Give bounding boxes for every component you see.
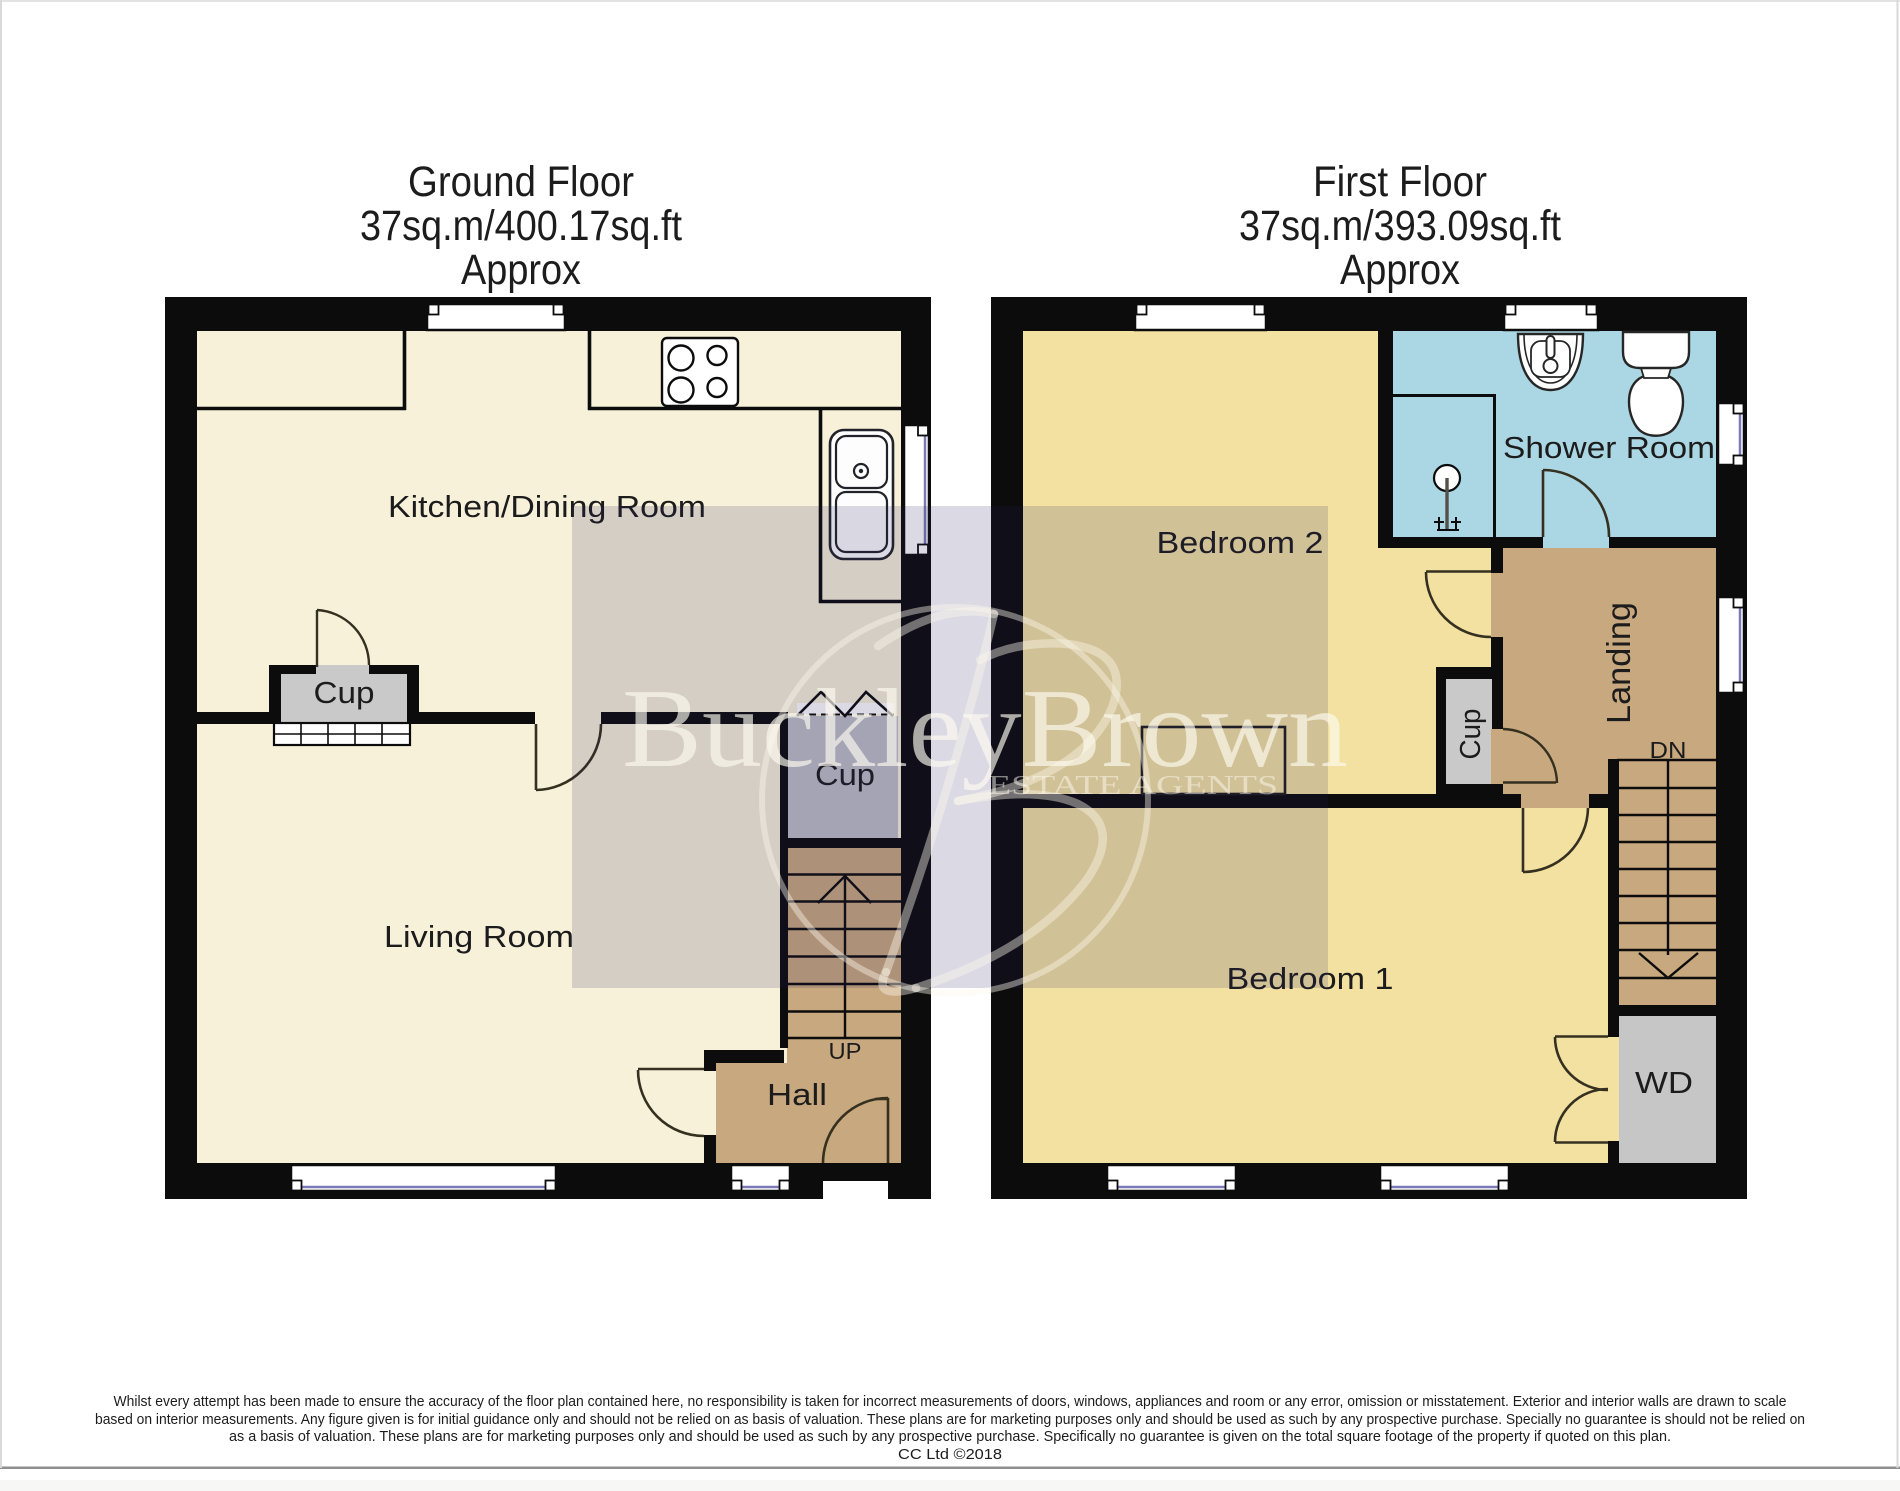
svg-text:Approx: Approx [461, 246, 581, 294]
svg-text:Approx: Approx [1340, 246, 1460, 294]
svg-text:ESTATE AGENTS: ESTATE AGENTS [988, 770, 1278, 800]
svg-text:Cup: Cup [1455, 709, 1487, 760]
svg-text:Landing: Landing [1600, 602, 1637, 724]
svg-text:37sq.m/393.09sq.ft: 37sq.m/393.09sq.ft [1239, 202, 1561, 250]
svg-text:Whilst every attempt has been: Whilst every attempt has been made to en… [114, 1394, 1787, 1410]
svg-text:based on interior measurements: based on interior measurements. Any figu… [95, 1412, 1805, 1428]
svg-text:Ground Floor: Ground Floor [408, 158, 634, 206]
svg-text:DN: DN [1650, 737, 1687, 763]
svg-text:CC Ltd ©2018: CC Ltd ©2018 [898, 1447, 1002, 1463]
svg-text:Living Room: Living Room [384, 919, 574, 954]
svg-text:Cup: Cup [314, 675, 375, 710]
svg-text:as a basis of valuation. These: as a basis of valuation. These plans are… [229, 1429, 1671, 1445]
svg-text:Hall: Hall [767, 1077, 827, 1112]
svg-text:37sq.m/400.17sq.ft: 37sq.m/400.17sq.ft [360, 202, 682, 250]
svg-text:First Floor: First Floor [1313, 158, 1487, 206]
svg-text:WD: WD [1635, 1065, 1693, 1100]
svg-text:UP: UP [829, 1038, 862, 1064]
svg-text:Shower Room: Shower Room [1503, 430, 1715, 465]
